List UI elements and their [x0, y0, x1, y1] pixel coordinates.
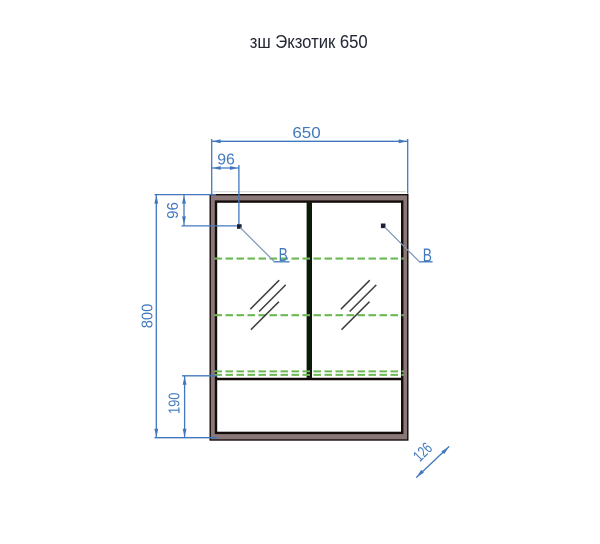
- svg-text:96: 96: [217, 152, 235, 169]
- svg-text:зш Экзотик 650: зш Экзотик 650: [250, 31, 368, 52]
- svg-text:650: 650: [292, 125, 320, 142]
- svg-text:96: 96: [165, 202, 182, 219]
- svg-text:В: В: [279, 245, 288, 265]
- svg-text:В: В: [423, 245, 432, 265]
- svg-text:190: 190: [167, 392, 184, 414]
- svg-text:800: 800: [140, 304, 157, 329]
